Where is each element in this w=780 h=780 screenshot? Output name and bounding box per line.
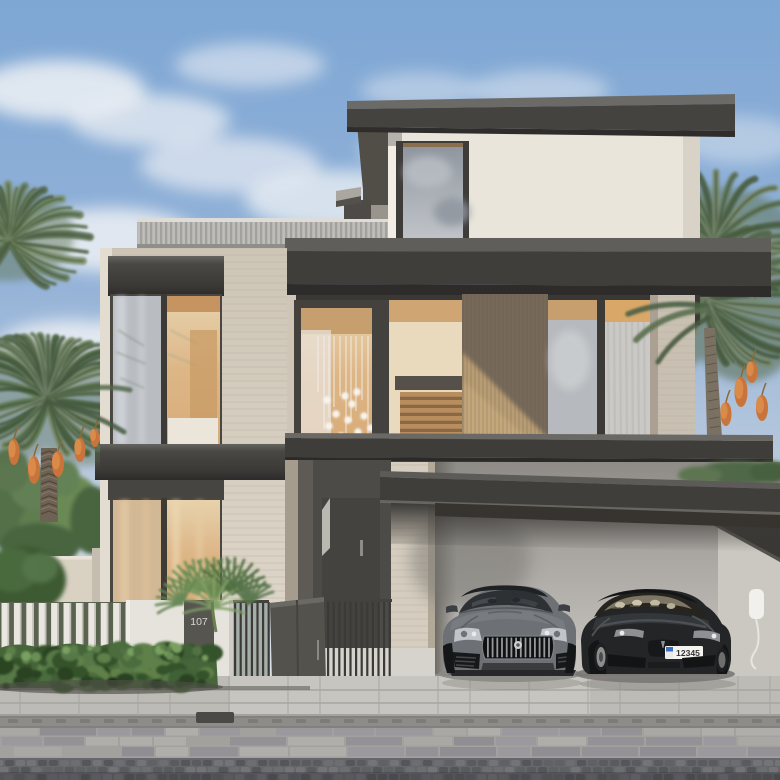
svg-text:12345: 12345 bbox=[676, 648, 700, 658]
svg-text:107: 107 bbox=[190, 616, 208, 628]
